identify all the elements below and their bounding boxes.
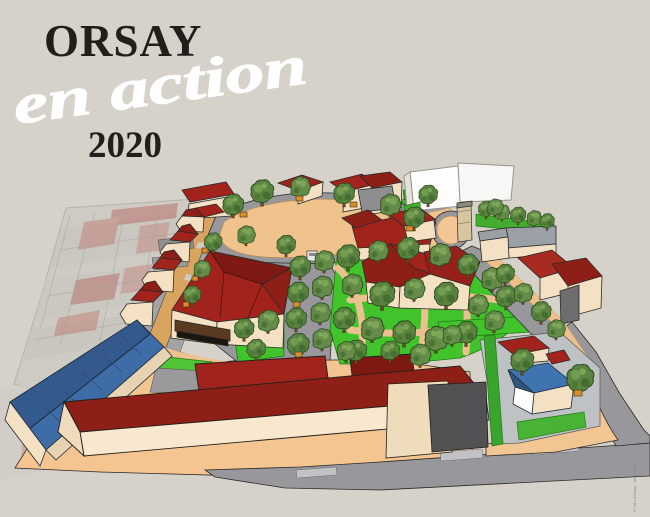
svg-text:© Ville d'Orsay - février 2020: © Ville d'Orsay - février 2020 [632,460,637,512]
svg-text:2020: 2020 [88,125,162,166]
